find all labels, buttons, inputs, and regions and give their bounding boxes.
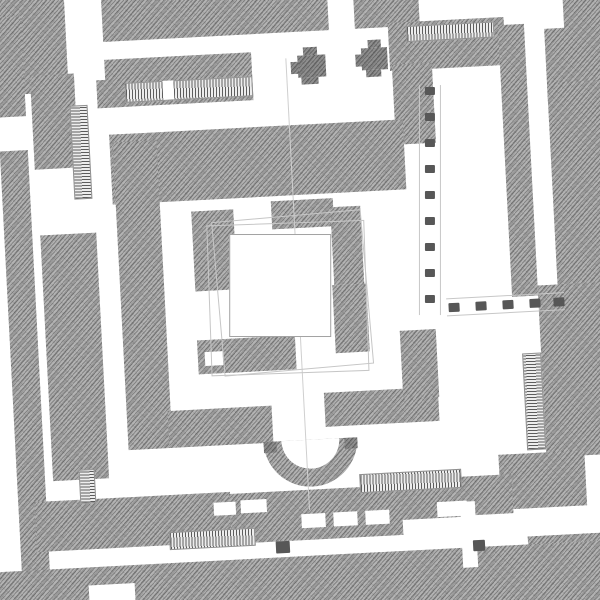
pillar-dot-bottom-center: [276, 541, 291, 554]
pillar-dot: [475, 301, 486, 311]
pillar-dot: [425, 113, 435, 121]
north-gate-east-foot: [366, 69, 381, 77]
top-left-corridor-gap: [74, 0, 106, 81]
apse-arc-cap: [263, 441, 277, 453]
plan-rotated-group: [0, 0, 600, 600]
apse-arc: [263, 437, 359, 492]
main-ring-bottom-wall-left: [168, 406, 274, 448]
central-monument: [229, 234, 331, 337]
north-gate-west-base: [297, 54, 326, 77]
stair-left-upper: [70, 105, 93, 200]
stair-left-lower: [79, 469, 97, 504]
pillar-dot: [425, 295, 435, 303]
bottom-tab-1: [213, 502, 236, 516]
bottom-tab-4: [333, 511, 358, 526]
pillar-dot: [425, 87, 435, 95]
right-edge-mass-upper: [547, 80, 600, 288]
north-gate-east-top-tab: [367, 39, 380, 48]
left-inner-bar: [40, 233, 109, 482]
bottom-tab-2: [240, 499, 267, 513]
bottom-tab-5: [365, 510, 390, 525]
pillar-dot: [425, 217, 435, 225]
pillar-dot-bottom-right: [473, 540, 486, 552]
left-strip-gap: [0, 116, 30, 152]
stair-gap-top-left: [162, 80, 174, 100]
north-gate-east-base: [361, 47, 388, 70]
top-edge-band: [96, 0, 420, 42]
pillar-dot: [425, 191, 435, 199]
north-gate-west-side-tab: [291, 62, 300, 74]
main-ring-right-wall: [400, 329, 440, 399]
bottom-tab-3: [301, 513, 326, 528]
pillar-dot: [553, 297, 564, 307]
stair-bottom-left: [169, 528, 256, 550]
north-gate-east-side-tab: [355, 54, 363, 66]
pillar-dot: [529, 298, 540, 308]
pillar-dot: [425, 139, 435, 147]
pillar-dot: [502, 300, 513, 310]
pillar-dot: [425, 165, 435, 173]
pillar-dot: [448, 303, 459, 313]
pillar-colonnade-vertical: [419, 85, 441, 315]
pillar-dot: [425, 269, 435, 277]
north-gate-west-top-tab: [303, 47, 317, 56]
plan-canvas: [0, 0, 600, 600]
top-entrance-corridor: [326, 0, 357, 83]
ne-right-bar: [498, 24, 538, 297]
north-gate-west-foot: [301, 77, 318, 85]
bottom-edge-gap: [89, 583, 137, 600]
top-right-notch: [541, 0, 565, 29]
pillar-dot: [425, 243, 435, 251]
apse-arc-cap: [344, 437, 358, 449]
